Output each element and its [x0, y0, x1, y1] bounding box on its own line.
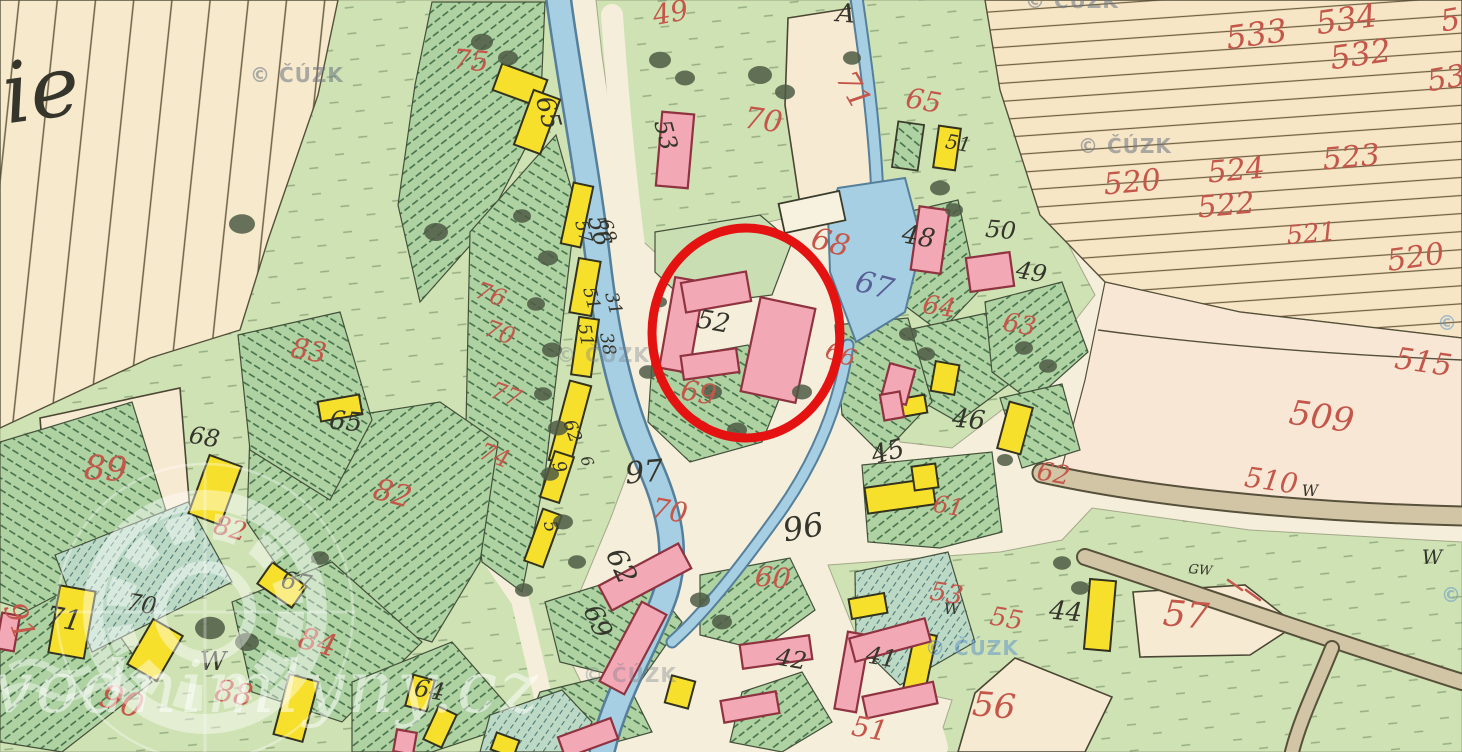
- tree-symbol: [649, 52, 671, 69]
- parcel-label: 57: [1161, 593, 1210, 638]
- watermark-cuzk: © ČÚZK: [250, 63, 344, 87]
- parcel-label: 523: [1321, 138, 1381, 178]
- tree-symbol: [775, 85, 795, 100]
- tree-symbol: [1071, 581, 1089, 595]
- parcel-label: 71: [43, 599, 84, 638]
- pink-building: [880, 391, 904, 420]
- parcel-label: 63: [1000, 307, 1038, 342]
- parcel-label: W: [1422, 545, 1444, 569]
- parcel-label: 55: [987, 601, 1025, 636]
- parcel-label: GW: [1188, 562, 1215, 579]
- yellow-building: [1084, 579, 1116, 651]
- tree-symbol: [568, 555, 586, 569]
- tree-symbol: [748, 66, 772, 84]
- parcel-label: W: [1302, 481, 1320, 500]
- tree-symbol: [538, 251, 558, 266]
- watermark-cuzk: © ČÚZK: [583, 663, 677, 687]
- tree-symbol: [229, 214, 255, 234]
- parcel-label: 49: [1013, 256, 1049, 289]
- parcel-label: 97: [624, 453, 666, 491]
- watermark-cuzk: © ČÚZK: [1078, 134, 1172, 158]
- parcel-label: 65: [903, 81, 944, 120]
- parcel-label: A: [833, 0, 856, 30]
- tree-symbol: [899, 327, 917, 341]
- parcel-label: ie: [0, 35, 86, 143]
- parcel-label: 41: [863, 641, 899, 674]
- parcel-label: 51: [849, 709, 890, 748]
- watermark-mill-text: vodnimlyny.cz: [0, 645, 541, 729]
- parcel-label: 51: [944, 129, 973, 157]
- tree-symbol: [843, 51, 861, 65]
- watermark-cuzk: © ČÚZK: [556, 343, 650, 367]
- parcel-label: 64: [921, 290, 958, 324]
- hatched-building: [892, 121, 924, 170]
- parcel-label: 65: [328, 406, 364, 439]
- tree-symbol: [424, 223, 448, 241]
- tree-symbol: [1015, 341, 1033, 355]
- tree-symbol: [498, 51, 518, 66]
- tree-symbol: [1053, 556, 1071, 570]
- parcel-label: W: [944, 599, 962, 618]
- parcel-label: 50: [984, 215, 1017, 246]
- parcel-label: 520: [1102, 163, 1162, 203]
- parcel-label: 89: [83, 448, 128, 490]
- parcel-label: 48: [899, 219, 938, 254]
- parcel-label: 62: [1034, 456, 1072, 491]
- parcel-label: 70: [649, 491, 690, 530]
- tree-symbol: [690, 593, 710, 608]
- watermark-cuzk: © ČÚZK: [1437, 311, 1462, 335]
- tree-symbol: [1039, 359, 1057, 373]
- cadastral-map-viewport: 4975707165686766696463626183828289909188…: [0, 0, 1462, 752]
- tree-symbol: [930, 181, 950, 196]
- tree-symbol: [527, 297, 545, 311]
- watermark-cuzk: © ČÚZK: [1025, 0, 1119, 13]
- tree-symbol: [997, 454, 1013, 466]
- tree-symbol: [195, 617, 225, 640]
- tree-symbol: [534, 387, 552, 401]
- map-svg: 4975707165686766696463626183828289909188…: [0, 0, 1462, 752]
- pink-building: [393, 729, 417, 752]
- watermark-cuzk: © ČÚZK: [1441, 583, 1462, 607]
- parcel-label: 53: [1425, 58, 1462, 99]
- parcel-label: 522: [1196, 186, 1256, 226]
- parcel-label: 83: [288, 331, 329, 370]
- tree-symbol: [917, 347, 935, 361]
- parcel-label: 68: [187, 421, 222, 454]
- tree-symbol: [515, 583, 533, 597]
- tree-symbol: [792, 385, 812, 400]
- parcel-label: 75: [452, 43, 490, 79]
- parcel-label: 61: [931, 490, 966, 523]
- parcel-label: 44: [1047, 596, 1084, 629]
- parcel-label: 70: [742, 101, 785, 141]
- parcel-label: 96: [780, 505, 827, 549]
- yellow-building: [911, 463, 938, 490]
- tree-symbol: [945, 203, 963, 217]
- parcel-label: 42: [773, 643, 809, 676]
- parcel-label: 56: [971, 684, 1018, 728]
- parcel-label: 52: [694, 304, 732, 339]
- parcel-label: 521: [1285, 217, 1337, 251]
- parcel-label: 524: [1206, 151, 1266, 191]
- tree-symbol: [712, 615, 732, 630]
- watermark-cuzk: © ČÚZK: [925, 636, 1019, 660]
- parcel-label: 60: [754, 560, 792, 596]
- tree-symbol: [675, 71, 695, 86]
- yellow-building: [931, 361, 960, 395]
- parcel-label: 46: [950, 404, 987, 437]
- pink-building: [966, 252, 1014, 292]
- tree-symbol: [513, 209, 531, 223]
